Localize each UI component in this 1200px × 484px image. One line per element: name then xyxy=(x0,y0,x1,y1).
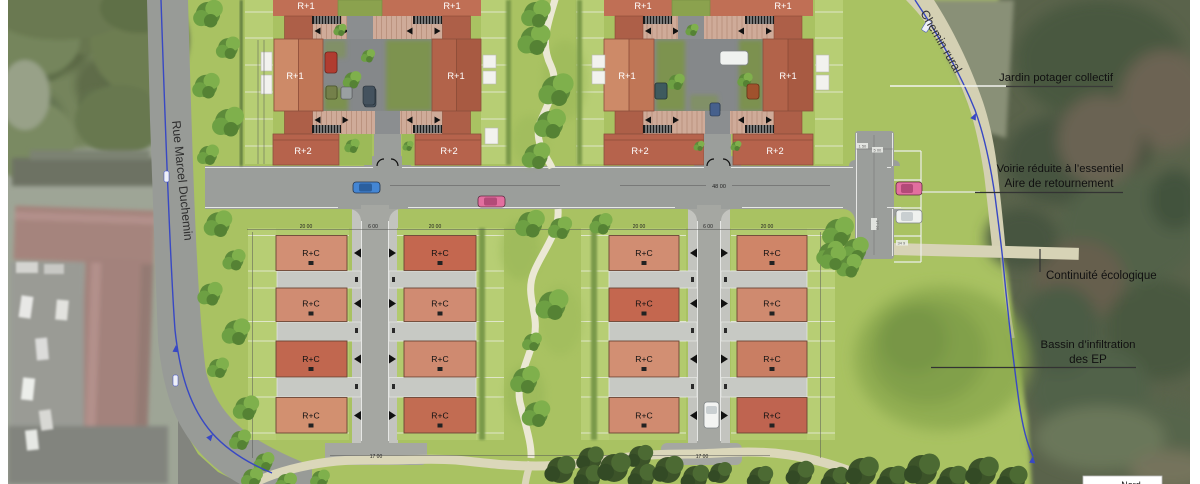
svg-text:R+2: R+2 xyxy=(294,146,311,156)
svg-text:R+C: R+C xyxy=(763,299,780,309)
svg-text:17 00: 17 00 xyxy=(370,454,383,460)
svg-text:20 00: 20 00 xyxy=(429,224,442,230)
svg-text:48 00: 48 00 xyxy=(712,184,726,190)
svg-text:R+C: R+C xyxy=(431,411,448,421)
svg-text:R+2: R+2 xyxy=(631,146,648,156)
svg-text:R+C: R+C xyxy=(635,248,652,258)
svg-text:17 20: 17 20 xyxy=(875,220,880,231)
svg-text:R+1: R+1 xyxy=(447,71,464,81)
svg-text:R+C: R+C xyxy=(302,299,319,309)
svg-text:6 00: 6 00 xyxy=(368,224,378,230)
svg-text:34 9: 34 9 xyxy=(898,241,907,246)
svg-text:6 00: 6 00 xyxy=(703,224,713,230)
svg-text:R+C: R+C xyxy=(763,411,780,421)
svg-text:R+1: R+1 xyxy=(443,1,460,11)
svg-text:Jardin potager collectif: Jardin potager collectif xyxy=(999,72,1114,84)
svg-text:R+1: R+1 xyxy=(774,1,791,11)
svg-text:20 00: 20 00 xyxy=(300,224,313,230)
svg-text:R+C: R+C xyxy=(431,354,448,364)
svg-text:R+C: R+C xyxy=(763,248,780,258)
svg-text:17 00: 17 00 xyxy=(696,454,709,460)
svg-text:Voirie réduite à l’essentiel: Voirie réduite à l’essentiel xyxy=(997,163,1124,175)
svg-text:Aire de retournement: Aire de retournement xyxy=(1005,177,1115,190)
svg-text:des EP: des EP xyxy=(1069,353,1107,366)
svg-text:20 00: 20 00 xyxy=(761,224,774,230)
svg-text:R+C: R+C xyxy=(431,248,448,258)
svg-text:R+C: R+C xyxy=(635,411,652,421)
svg-text:R+C: R+C xyxy=(302,354,319,364)
svg-text:R+1: R+1 xyxy=(634,1,651,11)
svg-text:R+2: R+2 xyxy=(440,146,457,156)
svg-text:R+1: R+1 xyxy=(618,71,635,81)
svg-text:Nord: Nord xyxy=(1121,480,1141,484)
svg-text:5 00: 5 00 xyxy=(874,148,883,153)
svg-text:R+C: R+C xyxy=(763,354,780,364)
svg-text:R+C: R+C xyxy=(302,411,319,421)
svg-text:1 50: 1 50 xyxy=(859,144,868,149)
svg-text:20 00: 20 00 xyxy=(633,224,646,230)
svg-text:R+C: R+C xyxy=(635,354,652,364)
svg-text:R+C: R+C xyxy=(635,299,652,309)
svg-text:R+1: R+1 xyxy=(286,71,303,81)
svg-text:R+C: R+C xyxy=(302,248,319,258)
svg-text:R+2: R+2 xyxy=(766,146,783,156)
svg-text:R+C: R+C xyxy=(431,299,448,309)
svg-text:Continuité écologique: Continuité écologique xyxy=(1046,270,1157,282)
svg-text:R+1: R+1 xyxy=(779,71,796,81)
svg-text:R+1: R+1 xyxy=(297,1,314,11)
svg-text:Bassin d’infiltration: Bassin d’infiltration xyxy=(1041,339,1136,351)
